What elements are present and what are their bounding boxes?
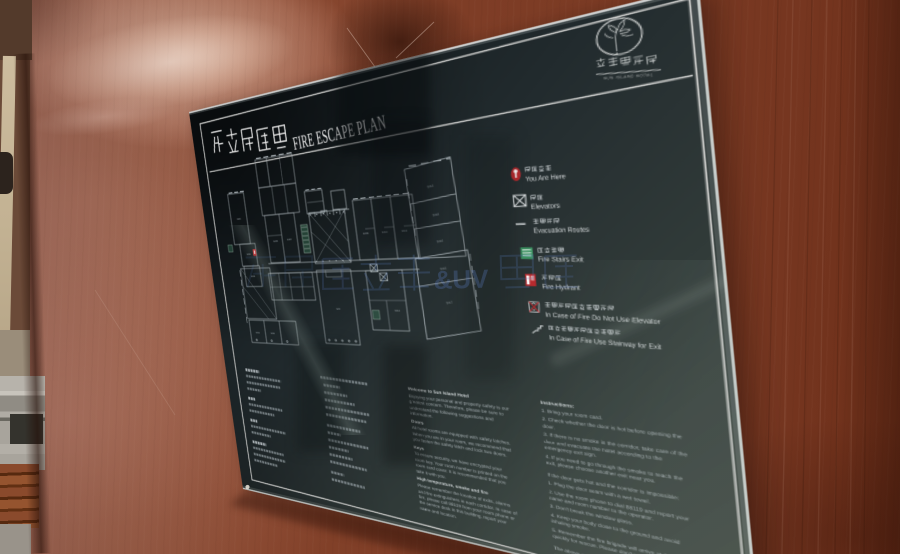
svg-text:3210: 3210 [382,231,389,234]
svg-text:In Case of Fire Use Stairway f: In Case of Fire Use Stairway for Exit [549,333,663,351]
svg-text:Fire Stairs Exit: Fire Stairs Exit [538,255,585,264]
svg-text:3202: 3202 [247,254,251,257]
svg-text:3218: 3218 [432,214,439,218]
svg-text:3212: 3212 [394,310,400,313]
svg-text:3206: 3206 [271,333,275,336]
svg-text:In Case of Fire Do Not Use Ele: In Case of Fire Do Not Use Elevator [545,310,662,326]
svg-text:3211: 3211 [401,230,407,233]
svg-text:3203: 3203 [251,276,256,279]
svg-text:3205: 3205 [273,241,278,244]
svg-text:3209: 3209 [363,233,369,236]
svg-text:Elevators: Elevators [531,201,561,211]
svg-text:3207: 3207 [287,239,292,242]
svg-text:3215: 3215 [440,268,447,272]
svg-text:3217: 3217 [446,302,453,306]
svg-text:3201: 3201 [237,218,242,221]
svg-text:Fire Hydrant: Fire Hydrant [542,282,582,292]
svg-text:You Are Here: You Are Here [525,171,567,183]
svg-text:3213: 3213 [427,185,434,189]
svg-text:3216: 3216 [437,240,444,244]
svg-text:320: 320 [336,308,341,311]
svg-text:FIRE ESCAPE PLAN: FIRE ESCAPE PLAN [291,111,387,154]
svg-text:3204: 3204 [256,332,260,335]
svg-text:Evacuation Routes: Evacuation Routes [533,225,589,235]
